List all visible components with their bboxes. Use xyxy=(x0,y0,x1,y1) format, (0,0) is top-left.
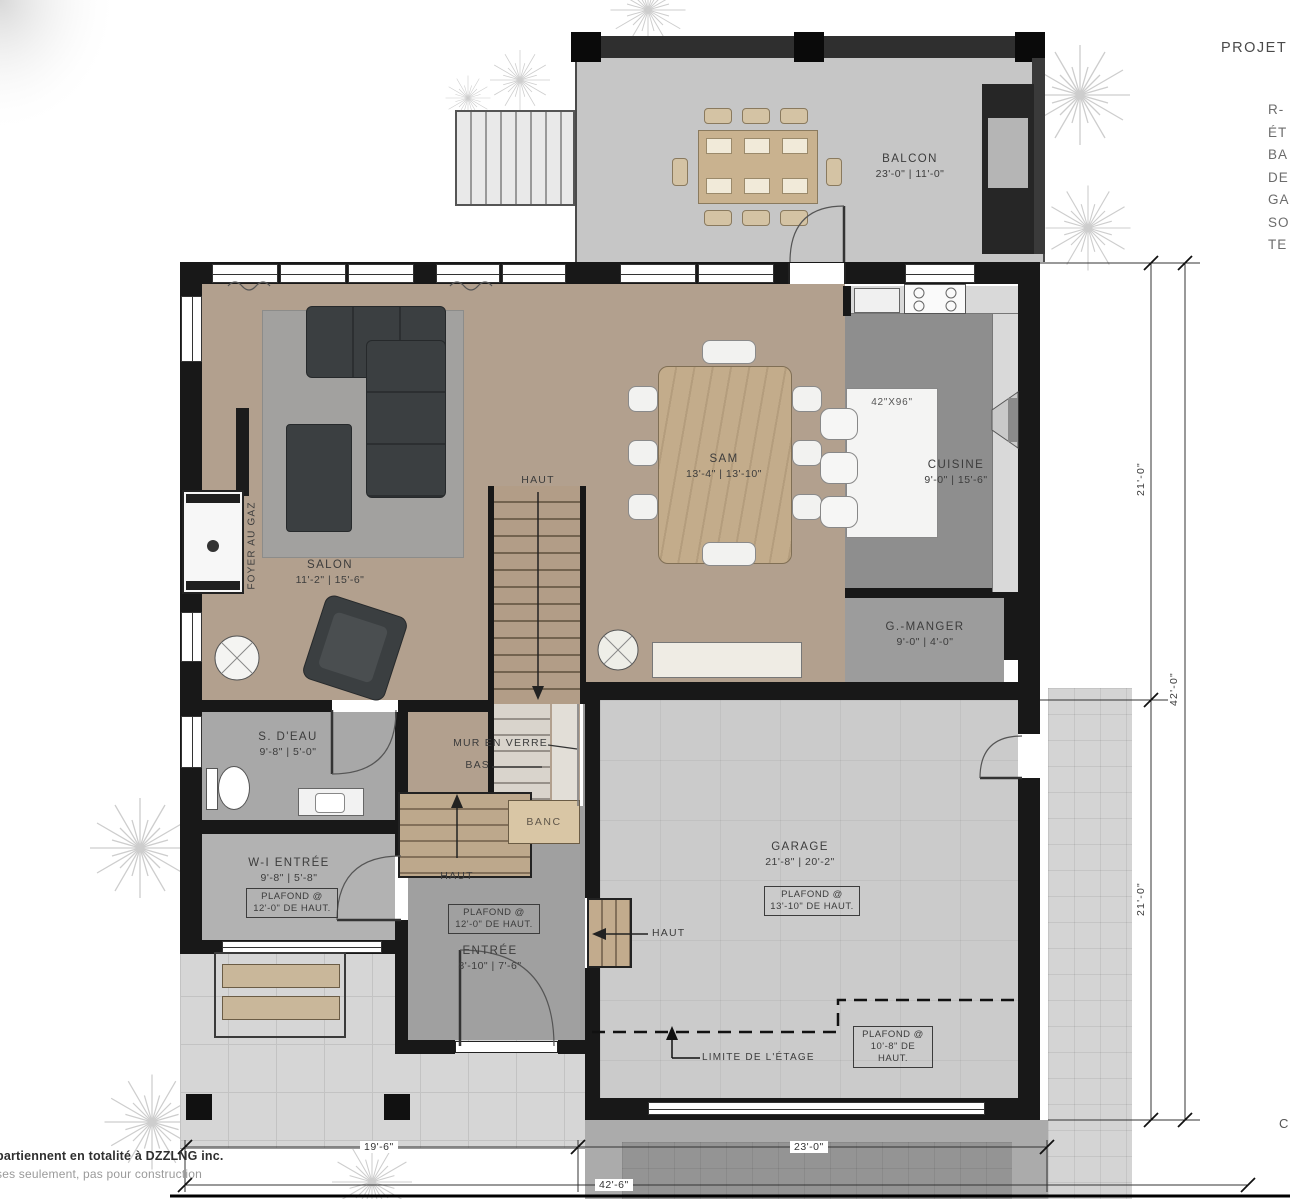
wall-garage-left xyxy=(585,968,600,1098)
wall-powder-walkin xyxy=(202,820,398,834)
legend-item: BA xyxy=(1268,147,1290,162)
room-name: SALON xyxy=(270,558,390,573)
outdoor-chair xyxy=(704,210,732,226)
wall-right-upper xyxy=(1018,262,1040,734)
outdoor-chair xyxy=(780,210,808,226)
corner-text-fragment: C xyxy=(1279,1116,1290,1131)
vanity xyxy=(298,788,364,816)
dining-chair xyxy=(792,386,822,412)
exterior-stairs xyxy=(455,110,575,206)
room-dims: 9'-8" | 5'-0" xyxy=(238,745,338,760)
copyright-line2: ses seulement, pas pour construction xyxy=(0,1167,202,1181)
dimension-bottom-230: 23'-0" xyxy=(790,1141,828,1153)
fireplace-cap xyxy=(186,494,240,503)
dining-chair xyxy=(702,340,756,364)
room-dims: 9'-0" | 15'-6" xyxy=(906,473,1006,488)
room-label-sdeau: S. D'EAU 9'-8" | 5'-0" xyxy=(238,730,338,760)
room-label-wi-entree: W-I ENTRÉE 9'-8" | 5'-8" xyxy=(234,856,344,886)
bench-label: BANC xyxy=(526,816,561,828)
room-dims: 21'-8" | 20'-2" xyxy=(740,855,860,870)
window xyxy=(436,264,500,283)
lower-stairs-up-label: HAUT xyxy=(430,870,484,882)
room-dims: 9'-0" | 4'-0" xyxy=(860,635,990,650)
room-label-garage: GARAGE 21'-8" | 20'-2" xyxy=(740,840,860,870)
dining-chair xyxy=(702,542,756,566)
room-name: BALCON xyxy=(850,152,970,167)
window xyxy=(348,264,414,283)
legend-list: R- ÉT BA DE GA SO TE xyxy=(1268,102,1290,252)
ceiling-note-line: PLAFOND @ xyxy=(768,889,856,901)
wall-garage-left xyxy=(585,695,600,898)
main-staircase xyxy=(494,486,580,704)
tv xyxy=(236,408,249,496)
gas-fireplace xyxy=(182,490,244,594)
wall-pantry-closet xyxy=(1004,598,1026,660)
toilet-tank xyxy=(206,768,218,810)
storey-limit-label: LIMITE DE L'ÉTAGE xyxy=(702,1052,815,1063)
room-dims: 8'-10" | 7'-6" xyxy=(438,959,542,974)
dining-chair xyxy=(792,494,822,520)
window xyxy=(181,612,202,662)
ceiling-note-entree: PLAFOND @ 12'-0" DE HAUT. xyxy=(448,904,540,934)
wall-hall-left xyxy=(395,920,408,942)
outdoor-chair xyxy=(742,210,770,226)
balcony-door-opening xyxy=(788,263,846,284)
bar-stool xyxy=(820,452,858,484)
room-dims: 13'-4" | 13'-10" xyxy=(664,467,784,482)
kitchen-counter-right xyxy=(992,314,1018,592)
room-label-entree: ENTRÉE 8'-10" | 7'-6" xyxy=(438,944,542,974)
legend-item: TE xyxy=(1268,237,1290,252)
stove xyxy=(904,284,966,314)
room-name: GARAGE xyxy=(740,840,860,855)
armchair-cushion xyxy=(318,611,389,683)
bar-stool xyxy=(820,408,858,440)
side-walkway xyxy=(1048,688,1132,1199)
glass-wall-label: MUR EN VERRE xyxy=(420,737,548,749)
ceiling-note-line: 13'-10" DE HAUT. xyxy=(768,901,856,913)
porch-column xyxy=(186,1094,212,1120)
bench: BANC xyxy=(508,800,580,844)
ceiling-note-line: 12'-0" DE HAUT. xyxy=(250,903,334,915)
wall-salon-bottom xyxy=(398,700,494,712)
porch-bench-slat xyxy=(222,964,340,988)
room-label-cuisine: CUISINE 9'-0" | 15'-6" xyxy=(906,458,1006,488)
fridge xyxy=(854,288,900,313)
room-label-salon: SALON 11'-2" | 15'-6" xyxy=(270,558,390,588)
legend-item: GA xyxy=(1268,192,1290,207)
room-dims: 9'-8" | 5'-8" xyxy=(234,871,344,886)
dining-chair xyxy=(628,494,658,520)
dimension-bottom-196: 19'-6" xyxy=(360,1141,398,1153)
ceiling-note-garage-low: PLAFOND @ 10'-8" DE HAUT. xyxy=(853,1026,933,1068)
garage-steps-up-label: HAUT xyxy=(652,927,685,939)
sink xyxy=(315,793,345,813)
wall-kitchen-stub xyxy=(843,286,851,316)
dimension-right-21b: 21'-0" xyxy=(1135,874,1147,924)
outdoor-chair xyxy=(826,158,842,186)
dimension-bottom-426: 42'-6" xyxy=(595,1179,633,1191)
balcony-post xyxy=(571,32,601,62)
bar-stool xyxy=(820,496,858,528)
room-dims: 23'-0" | 11'-0" xyxy=(850,167,970,182)
room-dims: 11'-2" | 15'-6" xyxy=(270,573,390,588)
garage-steps xyxy=(587,898,632,968)
balcony-post xyxy=(794,32,824,62)
wall-garage-top xyxy=(585,682,1018,700)
porch-bench-slat xyxy=(222,996,340,1020)
ceiling-note-line: 12'-0" DE HAUT. xyxy=(452,919,536,931)
stairs-up-label: HAUT xyxy=(512,474,564,486)
wall-entry-left xyxy=(395,942,408,1054)
legend-item: DE xyxy=(1268,170,1290,185)
placemat xyxy=(706,178,732,194)
outdoor-chair xyxy=(704,108,732,124)
window xyxy=(698,264,774,283)
porch-column xyxy=(384,1094,410,1120)
stair-rail-right xyxy=(579,486,586,704)
dining-chair xyxy=(792,440,822,466)
fireplace-label: FOYER AU GAZ xyxy=(247,500,258,592)
sofa-sectional xyxy=(366,340,446,498)
floor-plan: 42"X96" BANC xyxy=(0,0,1290,1199)
garage-door xyxy=(648,1102,985,1115)
wall-entry-bottom xyxy=(558,1040,585,1054)
window xyxy=(181,296,202,362)
placemat xyxy=(706,138,732,154)
outdoor-chair xyxy=(780,108,808,124)
front-door xyxy=(455,1041,558,1053)
window xyxy=(620,264,696,283)
room-name: SAM xyxy=(664,452,784,467)
window xyxy=(502,264,566,283)
room-name: G.-MANGER xyxy=(860,620,990,635)
room-name: ENTRÉE xyxy=(438,944,542,959)
placemat xyxy=(782,178,808,194)
room-name: CUISINE xyxy=(906,458,1006,473)
dimension-right-42: 42'-0" xyxy=(1168,664,1180,714)
legend-item: ÉT xyxy=(1268,125,1290,140)
outdoor-chair xyxy=(672,158,688,186)
ceiling-note-walkin: PLAFOND @ 12'-0" DE HAUT. xyxy=(246,888,338,918)
window xyxy=(212,264,278,283)
placemat xyxy=(744,178,770,194)
stair-landing xyxy=(552,704,579,806)
legend-item: SO xyxy=(1268,215,1290,230)
island-size-label: 42"X96" xyxy=(847,397,937,408)
porch-bench xyxy=(214,952,346,1038)
wall-entry-bottom xyxy=(408,1040,455,1054)
project-title: PROJET 2 xyxy=(1221,40,1290,56)
ceiling-note-line: PLAFOND @ xyxy=(452,907,536,919)
room-name: S. D'EAU xyxy=(238,730,338,745)
wall-salon-bottom xyxy=(180,700,332,712)
ottoman xyxy=(286,424,352,532)
ceiling-note-line: PLAFOND @ xyxy=(250,891,334,903)
outdoor-chair xyxy=(742,108,770,124)
window xyxy=(905,264,975,283)
ceiling-note-line: 10'-8" DE xyxy=(857,1041,929,1053)
garage-side-door-opening xyxy=(1018,734,1040,778)
wall-left xyxy=(180,262,202,954)
dining-chair xyxy=(628,386,658,412)
walkin-floor xyxy=(202,834,395,940)
placemat xyxy=(782,138,808,154)
ceiling-note-line: PLAFOND @ xyxy=(857,1029,929,1041)
toilet-bowl xyxy=(218,766,250,810)
room-label-sam: SAM 13'-4" | 13'-10" xyxy=(664,452,784,482)
wall-right-lower xyxy=(1018,778,1040,1120)
room-label-gmanger: G.-MANGER 9'-0" | 4'-0" xyxy=(860,620,990,650)
copyright-line1: partiennent en totalité à DZZLNG inc. xyxy=(0,1149,224,1163)
bbq-grill-lid xyxy=(988,118,1028,188)
room-label-balcon: BALCON 23'-0" | 11'-0" xyxy=(850,152,970,182)
fireplace-cap xyxy=(186,581,240,590)
legend-item: R- xyxy=(1268,102,1290,117)
ceiling-note-garage: PLAFOND @ 13'-10" DE HAUT. xyxy=(764,886,860,916)
room-name: W-I ENTRÉE xyxy=(234,856,344,871)
ceiling-note-line: HAUT. xyxy=(857,1053,929,1065)
window xyxy=(280,264,346,283)
stairs-down-label: BAS xyxy=(452,759,490,771)
dining-chair xyxy=(628,440,658,466)
credenza xyxy=(652,642,802,678)
placemat xyxy=(744,138,770,154)
window xyxy=(181,716,202,768)
basement-staircase xyxy=(494,704,550,806)
dimension-right-21: 21'-0" xyxy=(1135,454,1147,504)
